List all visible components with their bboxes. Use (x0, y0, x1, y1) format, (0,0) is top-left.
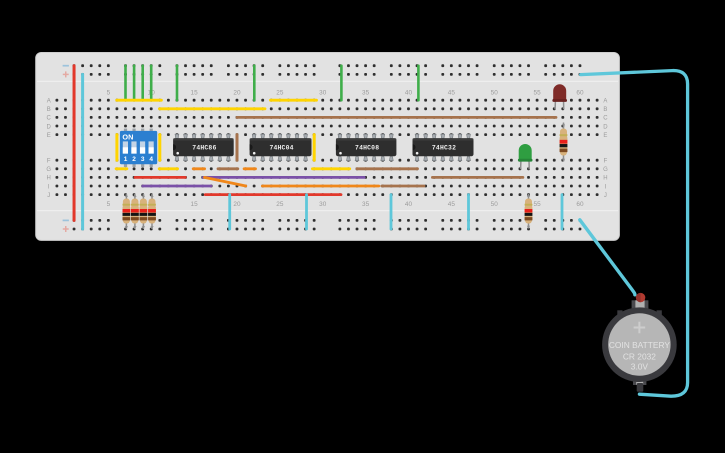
svg-text:50: 50 (491, 201, 499, 208)
svg-text:74HC08: 74HC08 (355, 145, 379, 152)
svg-text:74HC04: 74HC04 (269, 145, 293, 152)
svg-text:30: 30 (319, 201, 327, 208)
svg-text:40: 40 (405, 89, 413, 96)
svg-text:74HC86: 74HC86 (192, 145, 216, 152)
svg-text:COIN BATTERY: COIN BATTERY (609, 340, 671, 350)
svg-text:CR 2032: CR 2032 (623, 351, 656, 361)
svg-text:45: 45 (448, 89, 456, 96)
svg-text:20: 20 (233, 201, 241, 208)
svg-text:40: 40 (405, 201, 413, 208)
svg-text:A: A (47, 99, 51, 105)
svg-text:15: 15 (191, 89, 199, 96)
svg-text:E: E (603, 133, 607, 139)
svg-text:60: 60 (576, 201, 584, 208)
svg-text:74HC32: 74HC32 (432, 145, 456, 152)
svg-text:5: 5 (107, 89, 111, 96)
svg-text:D: D (603, 124, 608, 130)
svg-text:ON: ON (122, 133, 133, 142)
svg-text:55: 55 (534, 201, 542, 208)
svg-text:B: B (603, 107, 607, 113)
svg-text:3.0V: 3.0V (631, 362, 649, 372)
svg-text:30: 30 (319, 89, 327, 96)
svg-text:B: B (47, 107, 51, 113)
svg-text:60: 60 (576, 89, 584, 96)
svg-text:H: H (603, 176, 607, 182)
svg-text:55: 55 (534, 89, 542, 96)
svg-text:1: 1 (124, 156, 128, 163)
svg-text:25: 25 (276, 89, 284, 96)
svg-text:3: 3 (141, 156, 145, 163)
svg-text:G: G (603, 167, 608, 173)
svg-text:H: H (47, 176, 51, 182)
svg-text:G: G (46, 167, 51, 173)
svg-text:A: A (603, 99, 607, 105)
svg-text:E: E (47, 133, 51, 139)
svg-text:45: 45 (448, 201, 456, 208)
svg-text:20: 20 (233, 89, 241, 96)
svg-text:50: 50 (491, 89, 499, 96)
svg-text:25: 25 (276, 201, 284, 208)
svg-text:35: 35 (362, 201, 370, 208)
svg-text:J: J (47, 193, 50, 199)
svg-text:5: 5 (107, 201, 111, 208)
svg-text:C: C (47, 116, 52, 122)
svg-text:C: C (603, 116, 608, 122)
svg-text:J: J (604, 193, 607, 199)
svg-text:D: D (47, 124, 52, 130)
svg-text:15: 15 (191, 201, 199, 208)
svg-text:F: F (604, 159, 608, 165)
svg-text:F: F (47, 159, 51, 165)
svg-text:4: 4 (149, 156, 153, 163)
svg-text:35: 35 (362, 89, 370, 96)
svg-text:2: 2 (132, 156, 136, 163)
